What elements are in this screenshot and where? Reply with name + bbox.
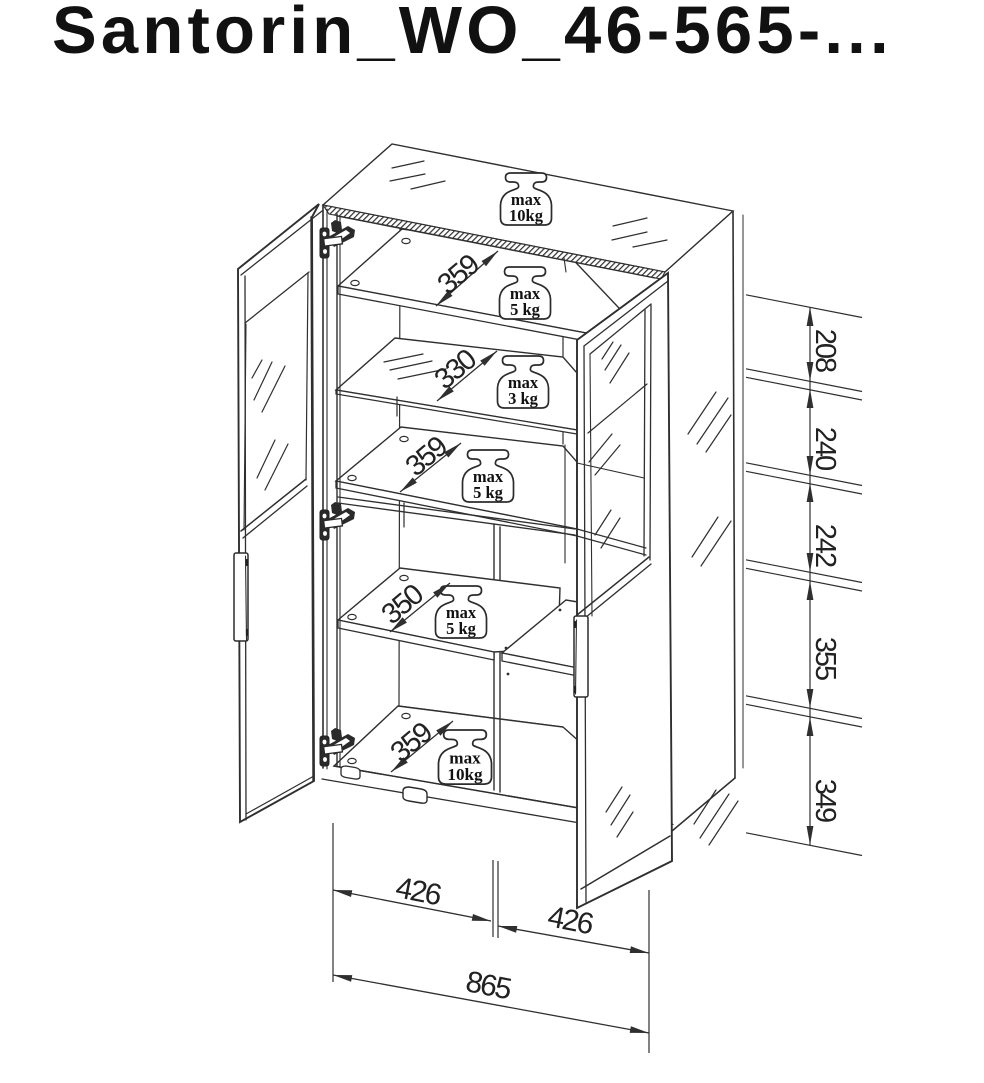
svg-text:355: 355 xyxy=(809,637,841,680)
svg-text:10kg: 10kg xyxy=(509,206,544,225)
svg-text:5 kg: 5 kg xyxy=(510,300,541,319)
svg-text:349: 349 xyxy=(809,779,841,822)
svg-text:5 kg: 5 kg xyxy=(446,619,477,638)
svg-text:5 kg: 5 kg xyxy=(473,483,504,502)
svg-text:208: 208 xyxy=(809,329,841,372)
svg-text:Santorin_WO_46-565-...: Santorin_WO_46-565-... xyxy=(52,0,893,68)
svg-text:3 kg: 3 kg xyxy=(508,389,539,408)
svg-text:240: 240 xyxy=(809,427,841,470)
svg-text:242: 242 xyxy=(809,524,841,567)
svg-text:10kg: 10kg xyxy=(447,765,483,784)
